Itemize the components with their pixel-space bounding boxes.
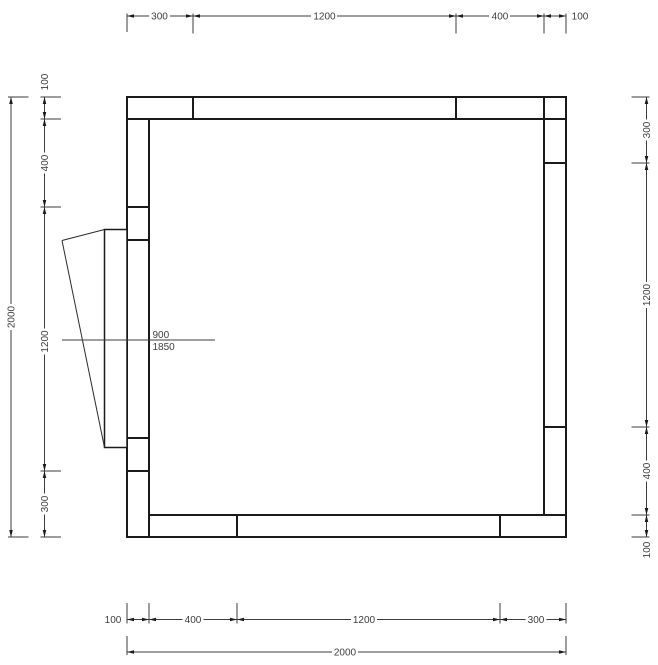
svg-text:1200: 1200 xyxy=(40,330,51,353)
svg-text:100: 100 xyxy=(105,615,122,626)
svg-text:300: 300 xyxy=(642,121,653,138)
svg-text:1850: 1850 xyxy=(153,342,176,353)
svg-text:300: 300 xyxy=(151,12,168,23)
svg-text:100: 100 xyxy=(572,12,589,23)
svg-text:400: 400 xyxy=(492,12,509,23)
svg-text:1200: 1200 xyxy=(353,615,376,626)
svg-text:2000: 2000 xyxy=(7,305,18,328)
svg-text:400: 400 xyxy=(185,615,202,626)
svg-text:300: 300 xyxy=(40,495,51,512)
svg-text:100: 100 xyxy=(642,541,653,558)
svg-text:900: 900 xyxy=(153,330,170,341)
svg-text:1200: 1200 xyxy=(313,12,336,23)
svg-text:400: 400 xyxy=(642,462,653,479)
svg-text:2000: 2000 xyxy=(334,648,357,659)
svg-text:300: 300 xyxy=(528,615,545,626)
svg-text:1200: 1200 xyxy=(642,283,653,306)
svg-text:100: 100 xyxy=(40,73,51,90)
svg-text:400: 400 xyxy=(40,154,51,171)
